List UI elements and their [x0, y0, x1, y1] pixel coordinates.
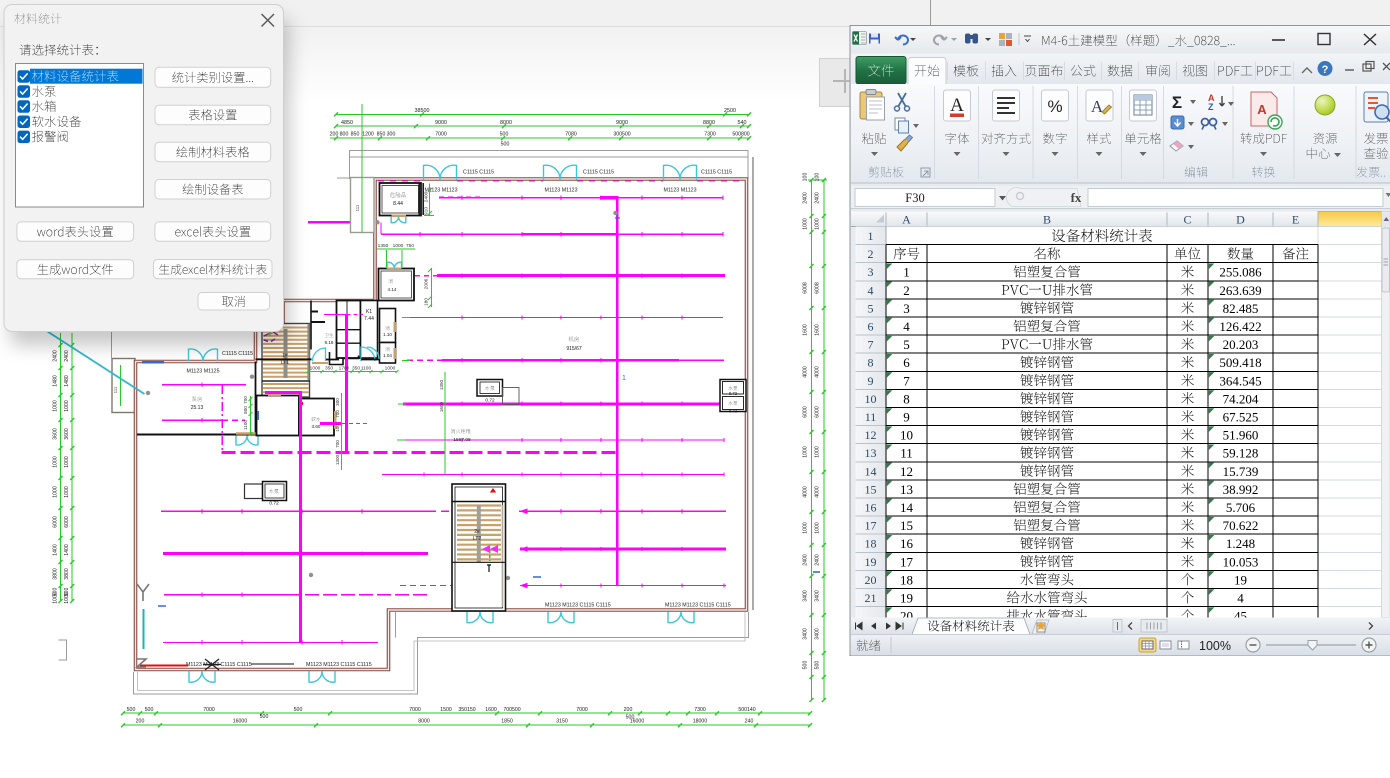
svg-text:21: 21	[865, 591, 877, 605]
svg-text:17: 17	[865, 519, 877, 533]
svg-text:8: 8	[903, 391, 910, 406]
svg-text:7: 7	[868, 338, 874, 352]
svg-text:1000: 1000	[64, 400, 70, 412]
svg-text:19: 19	[1234, 572, 1247, 587]
svg-text:C1115 C1115: C1115 C1115	[463, 170, 494, 176]
svg-text:0.72: 0.72	[485, 398, 495, 404]
svg-text:3400: 3400	[802, 590, 808, 602]
svg-text:4850: 4850	[341, 120, 353, 126]
svg-text:1: 1	[903, 265, 910, 280]
svg-text:B: B	[1043, 213, 1051, 227]
svg-text:850: 850	[351, 131, 360, 137]
svg-text:126.422: 126.422	[1219, 319, 1261, 334]
svg-text:38500: 38500	[415, 108, 430, 114]
svg-text:1200: 1200	[362, 131, 374, 137]
svg-text:18: 18	[900, 572, 913, 587]
svg-text:3: 3	[903, 301, 910, 316]
svg-text:M1123 M1123: M1123 M1123	[544, 188, 577, 194]
svg-text:350150: 350150	[458, 707, 475, 713]
svg-text:6008: 6008	[815, 282, 821, 294]
svg-text:18000: 18000	[693, 719, 708, 725]
svg-text:1.248: 1.248	[1226, 536, 1255, 551]
svg-text:A: A	[1091, 97, 1104, 116]
svg-text:850: 850	[377, 131, 386, 137]
svg-text:11: 11	[865, 410, 877, 424]
svg-text:6000: 6000	[53, 516, 59, 528]
svg-text:1000: 1000	[64, 456, 70, 468]
svg-text:M1123 M1123 C1115 C1115: M1123 M1123 C1115 C1115	[306, 662, 372, 668]
svg-text:3800: 3800	[53, 568, 59, 580]
svg-text:7080: 7080	[565, 131, 577, 137]
svg-text:700: 700	[335, 410, 340, 418]
svg-text:7300: 7300	[694, 707, 706, 713]
svg-text:2400: 2400	[802, 554, 808, 566]
svg-text:7000: 7000	[435, 131, 447, 137]
svg-text:16: 16	[865, 501, 877, 515]
svg-text:12: 12	[900, 464, 913, 479]
svg-text:200: 200	[624, 707, 633, 713]
svg-text:2: 2	[903, 283, 910, 298]
svg-text:M1123 M1123: M1123 M1123	[663, 188, 696, 194]
svg-text:14: 14	[865, 464, 877, 478]
svg-text:1000: 1000	[802, 446, 808, 458]
svg-text:10.053: 10.053	[1223, 554, 1259, 569]
svg-text:0.72: 0.72	[729, 391, 738, 396]
svg-text:1: 1	[622, 375, 626, 382]
svg-text:%: %	[1047, 97, 1062, 116]
svg-text:3600: 3600	[53, 428, 59, 440]
svg-text:0.72: 0.72	[269, 501, 279, 507]
svg-text:1100: 1100	[243, 420, 248, 430]
svg-text:8.44: 8.44	[393, 201, 403, 207]
svg-text:350: 350	[352, 366, 360, 372]
svg-text:7300: 7300	[704, 131, 716, 137]
svg-text:13: 13	[900, 482, 913, 497]
svg-text:111: 111	[355, 204, 360, 211]
svg-text:20.203: 20.203	[1223, 337, 1259, 352]
svg-text:500800: 500800	[732, 131, 749, 137]
svg-text:M1123 M1123 C1115 C1115: M1123 M1123 C1115 C1115	[665, 603, 731, 609]
svg-text:500: 500	[500, 131, 509, 137]
svg-text:100: 100	[802, 173, 808, 182]
svg-text:D: D	[1236, 213, 1245, 227]
svg-text:509.418: 509.418	[1219, 355, 1261, 370]
svg-text:4000: 4000	[815, 366, 821, 378]
svg-text:200: 200	[136, 719, 145, 725]
svg-text:LT2: LT2	[473, 536, 481, 542]
svg-text:17: 17	[900, 554, 914, 569]
svg-text:?: ?	[1322, 64, 1329, 76]
svg-text:M1123 M1125: M1123 M1125	[186, 369, 219, 375]
svg-text:70.622: 70.622	[1223, 518, 1259, 533]
svg-text:16000: 16000	[233, 719, 248, 725]
svg-text:2400: 2400	[64, 350, 70, 362]
svg-text:255.086: 255.086	[1219, 265, 1262, 280]
svg-text:2500: 2500	[724, 108, 736, 114]
svg-text:100%: 100%	[1199, 639, 1231, 653]
svg-text:11: 11	[900, 446, 913, 461]
svg-text:12: 12	[865, 428, 877, 442]
svg-text:500: 500	[501, 142, 510, 148]
svg-text:9: 9	[903, 410, 910, 425]
svg-text:4000: 4000	[802, 366, 808, 378]
svg-text:10: 10	[900, 428, 913, 443]
svg-text:1000: 1000	[802, 522, 808, 534]
svg-text:fx: fx	[1071, 190, 1082, 205]
svg-text:1000: 1000	[802, 218, 808, 230]
svg-text:6000: 6000	[64, 516, 70, 528]
svg-text:1: 1	[868, 229, 874, 243]
svg-text:15.739: 15.739	[1223, 464, 1259, 479]
svg-text:16: 16	[900, 536, 914, 551]
svg-text:25.13: 25.13	[191, 405, 204, 411]
svg-text:750: 750	[406, 243, 414, 249]
svg-text:8800: 8800	[703, 120, 715, 126]
svg-text:1850: 1850	[501, 719, 513, 725]
svg-text:800: 800	[340, 131, 349, 137]
svg-text:3400: 3400	[815, 628, 821, 640]
svg-text:19: 19	[865, 555, 877, 569]
svg-text:1500: 1500	[440, 707, 452, 713]
svg-text:200: 200	[330, 131, 339, 137]
svg-text:3: 3	[868, 265, 874, 279]
svg-text:0.72: 0.72	[729, 409, 738, 414]
svg-text:A: A	[1257, 102, 1267, 117]
svg-text:3.60: 3.60	[312, 424, 321, 429]
svg-text:9000: 9000	[435, 120, 447, 126]
svg-text:350: 350	[325, 366, 333, 372]
svg-text:1000: 1000	[53, 592, 59, 604]
svg-text:1.10: 1.10	[383, 332, 392, 337]
svg-text:4000: 4000	[815, 486, 821, 498]
svg-text:A: A	[902, 213, 911, 227]
svg-text:500: 500	[294, 707, 303, 713]
svg-text:7.44: 7.44	[364, 316, 374, 322]
svg-text:300: 300	[387, 131, 396, 137]
svg-text:3150: 3150	[556, 719, 568, 725]
svg-text:C: C	[1183, 213, 1191, 227]
svg-text:1000: 1000	[53, 400, 59, 412]
svg-text:1600: 1600	[815, 324, 821, 336]
svg-text:9.16: 9.16	[325, 340, 334, 345]
svg-text:1600: 1600	[485, 707, 497, 713]
svg-text:300: 300	[335, 398, 340, 406]
svg-text:7000: 7000	[409, 707, 421, 713]
svg-text:1000: 1000	[310, 366, 321, 372]
svg-text:19: 19	[900, 591, 913, 606]
svg-text:8: 8	[868, 356, 874, 370]
svg-text:910: 910	[424, 207, 430, 215]
svg-text:38.992: 38.992	[1223, 482, 1259, 497]
svg-text:2400: 2400	[424, 191, 430, 202]
svg-text:C1115 C1115: C1115 C1115	[583, 170, 614, 176]
svg-text:2400: 2400	[802, 192, 808, 204]
svg-text:6: 6	[903, 355, 910, 370]
svg-text:500: 500	[626, 715, 635, 721]
svg-text:500: 500	[127, 707, 136, 713]
svg-text:1000: 1000	[815, 446, 821, 458]
svg-text:1000: 1000	[385, 366, 396, 372]
svg-text:15: 15	[900, 518, 913, 533]
svg-text:1000: 1000	[64, 486, 70, 498]
svg-text:1600: 1600	[802, 324, 808, 336]
svg-text:1350: 1350	[439, 379, 444, 390]
svg-text:M1123 M1123 C1115 C1115: M1123 M1123 C1115 C1115	[545, 603, 611, 609]
svg-text:364.545: 364.545	[1219, 373, 1261, 388]
svg-text:1700: 1700	[339, 366, 350, 372]
svg-text:1000: 1000	[64, 592, 70, 604]
svg-text:14: 14	[900, 500, 914, 515]
svg-text:111: 111	[113, 386, 118, 393]
svg-text:500: 500	[145, 707, 154, 713]
svg-text:1.04: 1.04	[383, 353, 392, 358]
svg-text:500: 500	[802, 661, 808, 670]
svg-text:20: 20	[865, 573, 877, 587]
svg-text:1350: 1350	[378, 243, 389, 249]
svg-text:C1115 C1115: C1115 C1115	[222, 351, 253, 357]
svg-text:5.706: 5.706	[1226, 500, 1256, 515]
svg-text:3400: 3400	[815, 590, 821, 602]
svg-text:1000: 1000	[53, 486, 59, 498]
svg-text:4000: 4000	[802, 486, 808, 498]
svg-text:800: 800	[243, 406, 248, 414]
svg-text:Σ: Σ	[1172, 93, 1182, 112]
svg-text:1400: 1400	[64, 544, 70, 556]
svg-text:1000: 1000	[393, 243, 404, 249]
svg-text:9: 9	[868, 374, 874, 388]
svg-text:6000: 6000	[802, 406, 808, 418]
svg-text:F30: F30	[905, 191, 924, 205]
svg-text:7: 7	[903, 373, 910, 388]
svg-text:540: 540	[738, 120, 747, 126]
svg-text:2006: 2006	[424, 278, 430, 289]
svg-text:500: 500	[260, 714, 269, 720]
svg-text:1000: 1000	[53, 456, 59, 468]
svg-text:10: 10	[865, 392, 877, 406]
svg-text:6000: 6000	[815, 406, 821, 418]
svg-text:1600: 1600	[439, 401, 444, 412]
svg-text:240: 240	[745, 719, 754, 725]
svg-text:2400: 2400	[53, 350, 59, 362]
svg-text:100: 100	[815, 173, 821, 182]
svg-text:4: 4	[868, 283, 874, 297]
svg-text:13: 13	[865, 446, 877, 460]
svg-text:500: 500	[815, 661, 821, 670]
svg-text:2400: 2400	[815, 554, 821, 566]
svg-text:300500: 300500	[613, 131, 630, 137]
svg-text:67.525: 67.525	[1223, 410, 1259, 425]
svg-text:500140: 500140	[738, 707, 755, 713]
svg-text:1#: 1#	[282, 353, 288, 359]
svg-text:180: 180	[424, 298, 430, 306]
svg-text:51.960: 51.960	[1223, 428, 1259, 443]
svg-text:LT1: LT1	[281, 360, 289, 366]
svg-text:Z: Z	[1208, 102, 1214, 112]
svg-text:18: 18	[865, 537, 877, 551]
svg-text:8000: 8000	[500, 120, 512, 126]
svg-text:82.485: 82.485	[1223, 301, 1259, 316]
svg-text:59.128: 59.128	[1223, 446, 1259, 461]
svg-text:3800: 3800	[64, 568, 70, 580]
svg-text:1300: 1300	[335, 454, 340, 465]
svg-text:100: 100	[335, 424, 340, 432]
svg-text:74.204: 74.204	[1223, 391, 1259, 406]
svg-text:1480: 1480	[64, 375, 70, 387]
svg-text:8000: 8000	[418, 719, 430, 725]
svg-text:3600: 3600	[64, 428, 70, 440]
svg-text:915/67: 915/67	[566, 346, 582, 352]
svg-text:9000: 9000	[616, 120, 628, 126]
svg-text:7000: 7000	[576, 707, 588, 713]
svg-text:5: 5	[868, 301, 874, 315]
svg-text:3400: 3400	[802, 628, 808, 640]
svg-text:2#: 2#	[474, 529, 480, 535]
svg-text:1480: 1480	[53, 375, 59, 387]
svg-text:6008: 6008	[802, 282, 808, 294]
svg-text:4: 4	[1237, 591, 1244, 606]
svg-text:E: E	[1292, 213, 1299, 227]
svg-text:1567.08: 1567.08	[453, 437, 471, 443]
svg-text:1000: 1000	[815, 522, 821, 534]
svg-text:A: A	[950, 95, 964, 116]
svg-text:6: 6	[868, 320, 874, 334]
svg-text:1000: 1000	[815, 218, 821, 230]
svg-text:263.639: 263.639	[1219, 283, 1261, 298]
svg-text:2: 2	[868, 247, 874, 261]
svg-text:4: 4	[903, 319, 910, 334]
svg-text:7000: 7000	[203, 707, 215, 713]
svg-text:C1115 C1115: C1115 C1115	[701, 170, 732, 176]
svg-text:700500: 700500	[503, 707, 520, 713]
svg-text:5: 5	[903, 337, 910, 352]
svg-text:15: 15	[865, 482, 877, 496]
svg-text:4.14: 4.14	[388, 287, 397, 292]
svg-text:1100: 1100	[361, 366, 372, 372]
svg-text:K1: K1	[366, 309, 372, 315]
svg-text:700: 700	[335, 440, 340, 448]
svg-text:700: 700	[243, 396, 248, 404]
svg-text:1400: 1400	[53, 544, 59, 556]
svg-text:2400: 2400	[815, 192, 821, 204]
